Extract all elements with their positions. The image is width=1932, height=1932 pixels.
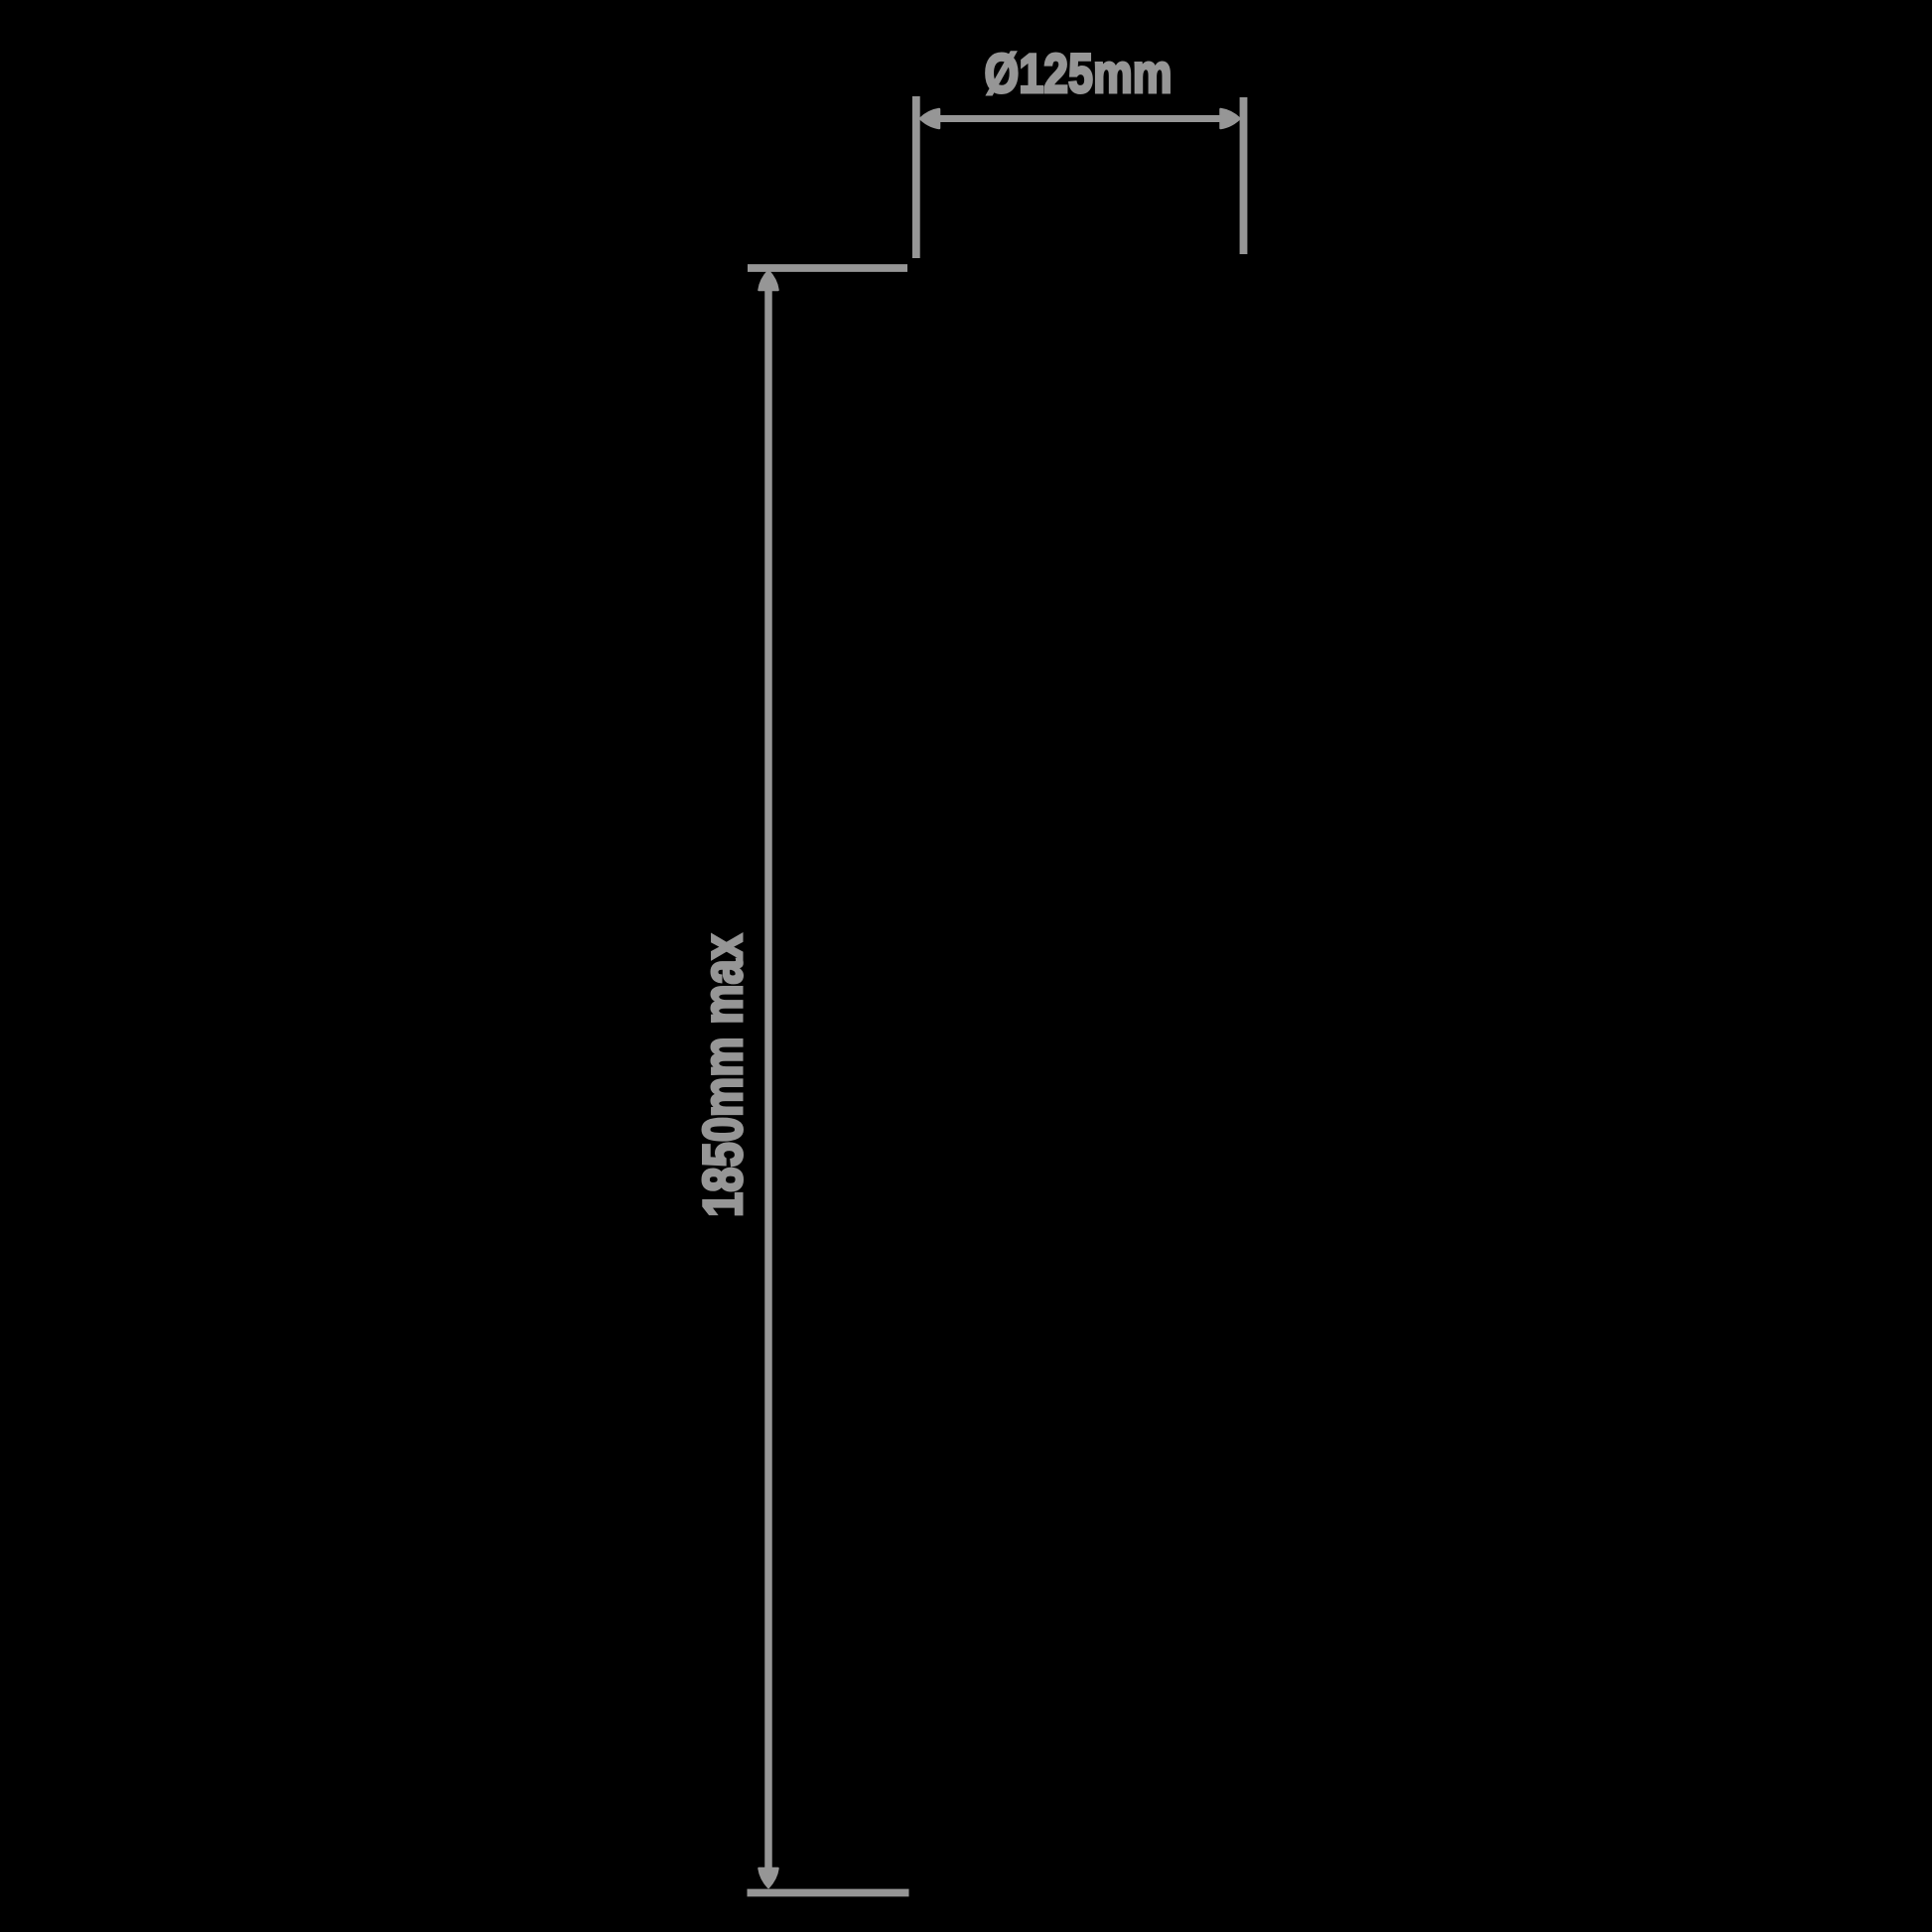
svg-text:1850mm max: 1850mm max: [691, 934, 754, 1217]
svg-text:Ø125mm: Ø125mm: [985, 42, 1173, 104]
